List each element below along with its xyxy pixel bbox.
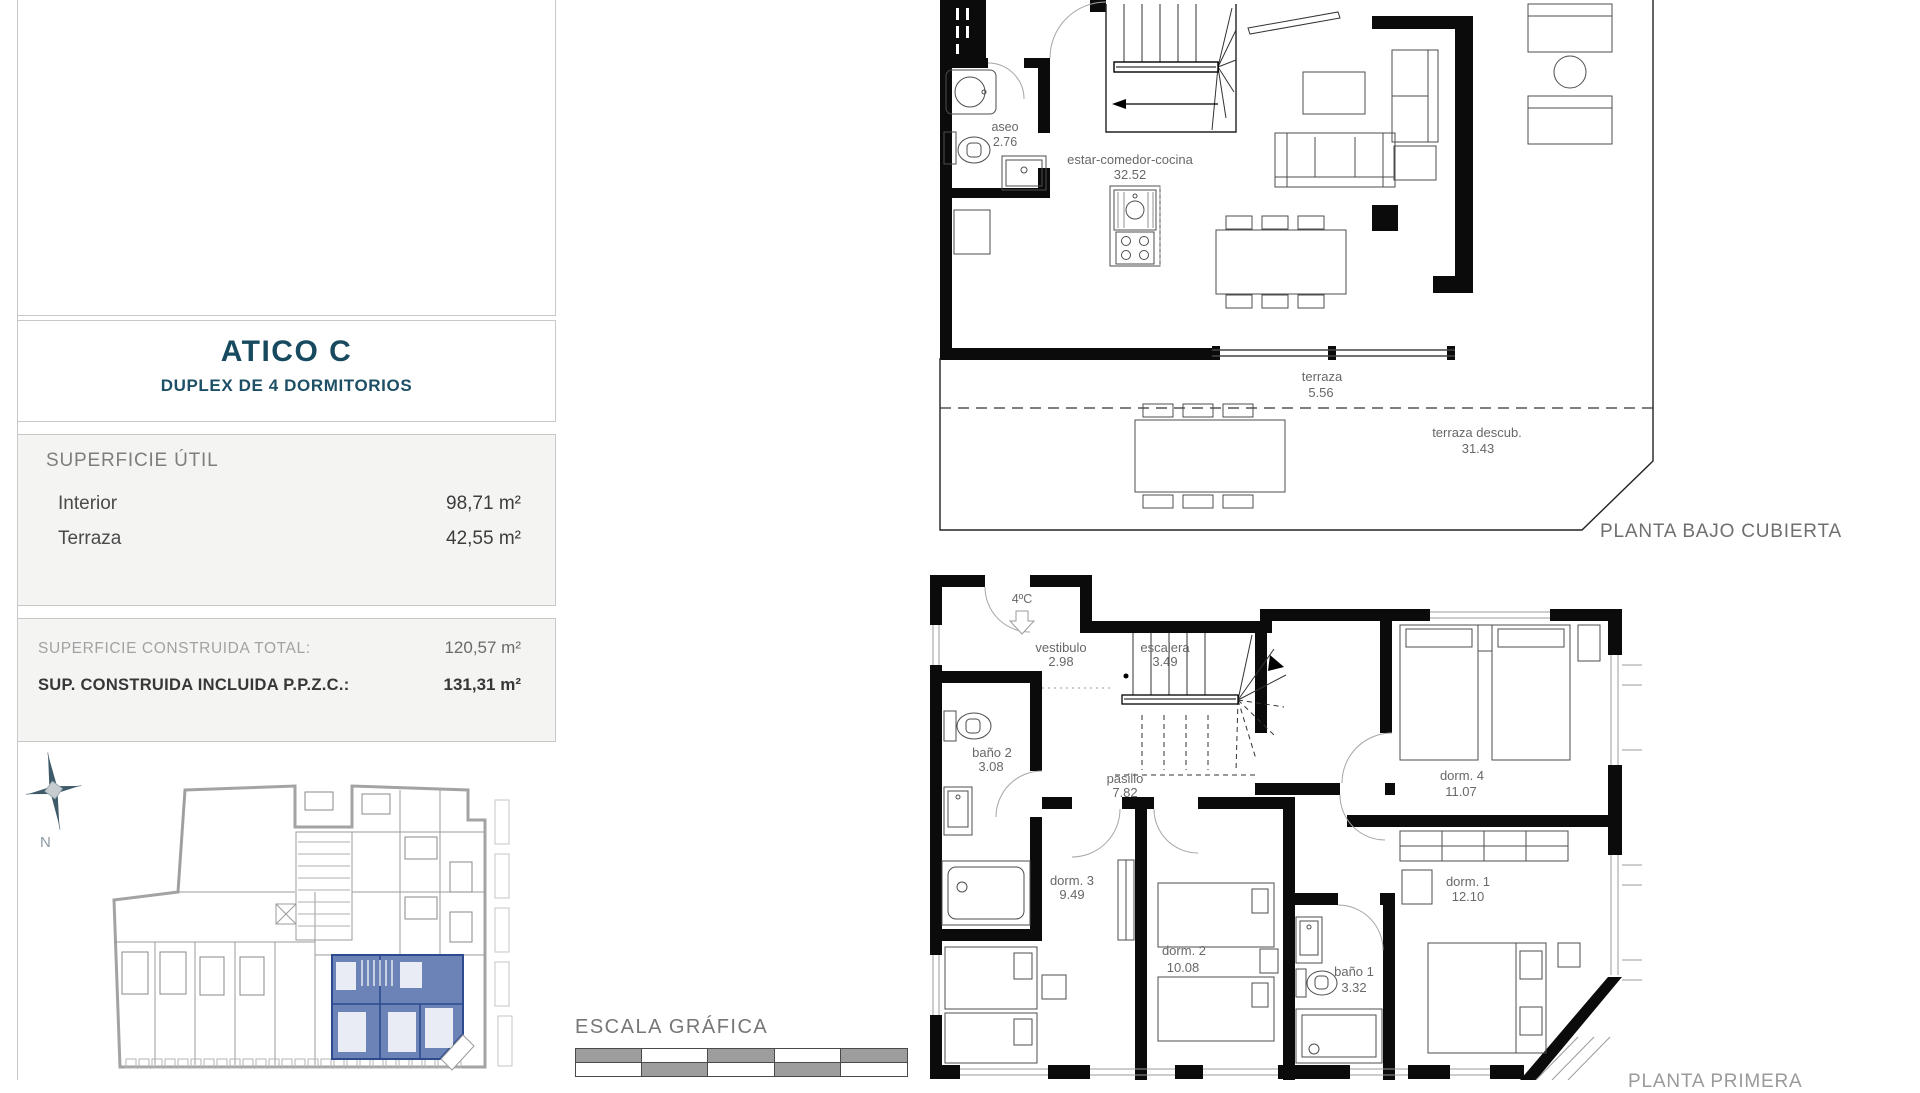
room-value-terraza: 5.56 [1308,385,1333,400]
row-label: SUP. CONSTRUIDA INCLUIDA P.P.Z.C.: [38,676,350,695]
dining-set [1216,216,1346,308]
room-value-dorm4: 11.07 [1445,784,1477,799]
site-plan-map [100,772,530,1080]
terrace-dining-set [1135,404,1285,508]
aseo-door-arc [988,63,1024,99]
upper-floor-plan: aseo 2.76 estar-comedor-cocina 32.52 ter… [930,0,1670,552]
empty-panel [17,0,556,316]
room-label-estar: estar-comedor-cocina [1067,152,1193,167]
chimney-block [1372,205,1398,231]
dorm1-furniture [1400,831,1580,1053]
room-label-bano1: baño 1 [1334,964,1374,979]
stair-hatch [298,842,350,926]
lower-floor-plan: 4ºC [930,565,1650,1080]
tv-unit [1248,12,1340,34]
room-label-terraza-descub: terraza descub. [1432,425,1522,440]
facade-ticks [1536,665,1642,1080]
row-label: Terraza [58,528,121,550]
room-label-dorm1: dorm. 1 [1446,874,1490,889]
room-value-escalera: 3.49 [1152,654,1177,669]
upper-plan-walls [940,0,1473,360]
room-value-dorm1: 12.10 [1452,889,1485,904]
superficie-util-table: SUPERFICIE ÚTIL Interior 98,71 m² Terraz… [17,434,556,606]
plan-sheet: { "unit_card": { "title": "ATICO C", "su… [0,0,1920,1080]
table-row: Terraza 42,55 m² [46,528,521,550]
lower-plan-caption: PLANTA PRIMERA [1628,1071,1803,1093]
row-label: Interior [58,493,117,515]
room-label-escalera: escalera [1140,640,1190,655]
scale-bar [575,1048,907,1076]
compass-icon [24,752,86,852]
row-value: 98,71 m² [446,493,521,515]
room-label-dorm2: dorm. 2 [1162,943,1206,958]
dorm4-furniture [1400,625,1600,760]
living-furniture [1275,50,1438,187]
north-label: N [40,834,51,851]
row-value: 42,55 m² [446,528,521,550]
room-value-dorm3: 9.49 [1059,887,1084,902]
table-row: Interior 98,71 m² [46,493,521,515]
room-value-bano2: 3.08 [978,759,1003,774]
room-value-aseo: 2.76 [993,135,1017,149]
room-label-terraza: terraza [1302,369,1343,384]
room-value-terraza-descub: 31.43 [1462,441,1495,456]
table-row: SUPERFICIE CONSTRUIDA TOTAL: 120,57 m² [38,638,521,658]
superficie-util-heading: SUPERFICIE ÚTIL [46,450,521,472]
page-title: ATICO C [18,321,555,369]
adjacent-plots [495,800,512,1066]
unit-title-card: ATICO C DUPLEX DE 4 DORMITORIOS [17,320,556,422]
upper-stairs [1106,4,1236,132]
superficie-construida-table: SUPERFICIE CONSTRUIDA TOTAL: 120,57 m² S… [17,618,556,742]
unit-subtitle: DUPLEX DE 4 DORMITORIOS [18,369,555,396]
entry-arrow-icon [1010,611,1034,634]
room-label-pasillo: pasillo [1107,771,1144,786]
room-value-estar: 32.52 [1114,167,1147,182]
bath1-fixtures [1296,917,1382,1063]
hall-cabinet [954,210,990,254]
entry-label: 4ºC [1012,592,1033,606]
scale-label: ESCALA GRÁFICA [575,1016,768,1039]
terrace-loungers [1528,4,1612,144]
row-value: 131,31 m² [444,675,522,695]
table-row: SUP. CONSTRUIDA INCLUIDA P.P.Z.C.: 131,3… [38,675,521,695]
row-label: SUPERFICIE CONSTRUIDA TOTAL: [38,640,311,658]
room-label-bano2: baño 2 [972,745,1012,760]
upper-plan-caption: PLANTA BAJO CUBIERTA [1600,521,1850,543]
room-value-pasillo: 7.82 [1112,785,1137,800]
room-label-dorm4: dorm. 4 [1440,768,1484,783]
room-value-vestibulo: 2.98 [1048,654,1073,669]
bath2-fixtures [942,711,1030,925]
room-value-dorm2: 10.08 [1167,960,1200,975]
room-label-dorm3: dorm. 3 [1050,873,1094,888]
row-value: 120,57 m² [444,638,521,658]
highlighted-unit [332,955,463,1059]
kitchen-fixtures [1110,186,1160,266]
door-arcs [996,733,1392,950]
room-label-vestibulo: vestibulo [1035,640,1086,655]
room-label-aseo: aseo [991,120,1018,134]
room-value-bano1: 3.32 [1341,980,1366,995]
lower-plan-walls [930,575,1622,1080]
